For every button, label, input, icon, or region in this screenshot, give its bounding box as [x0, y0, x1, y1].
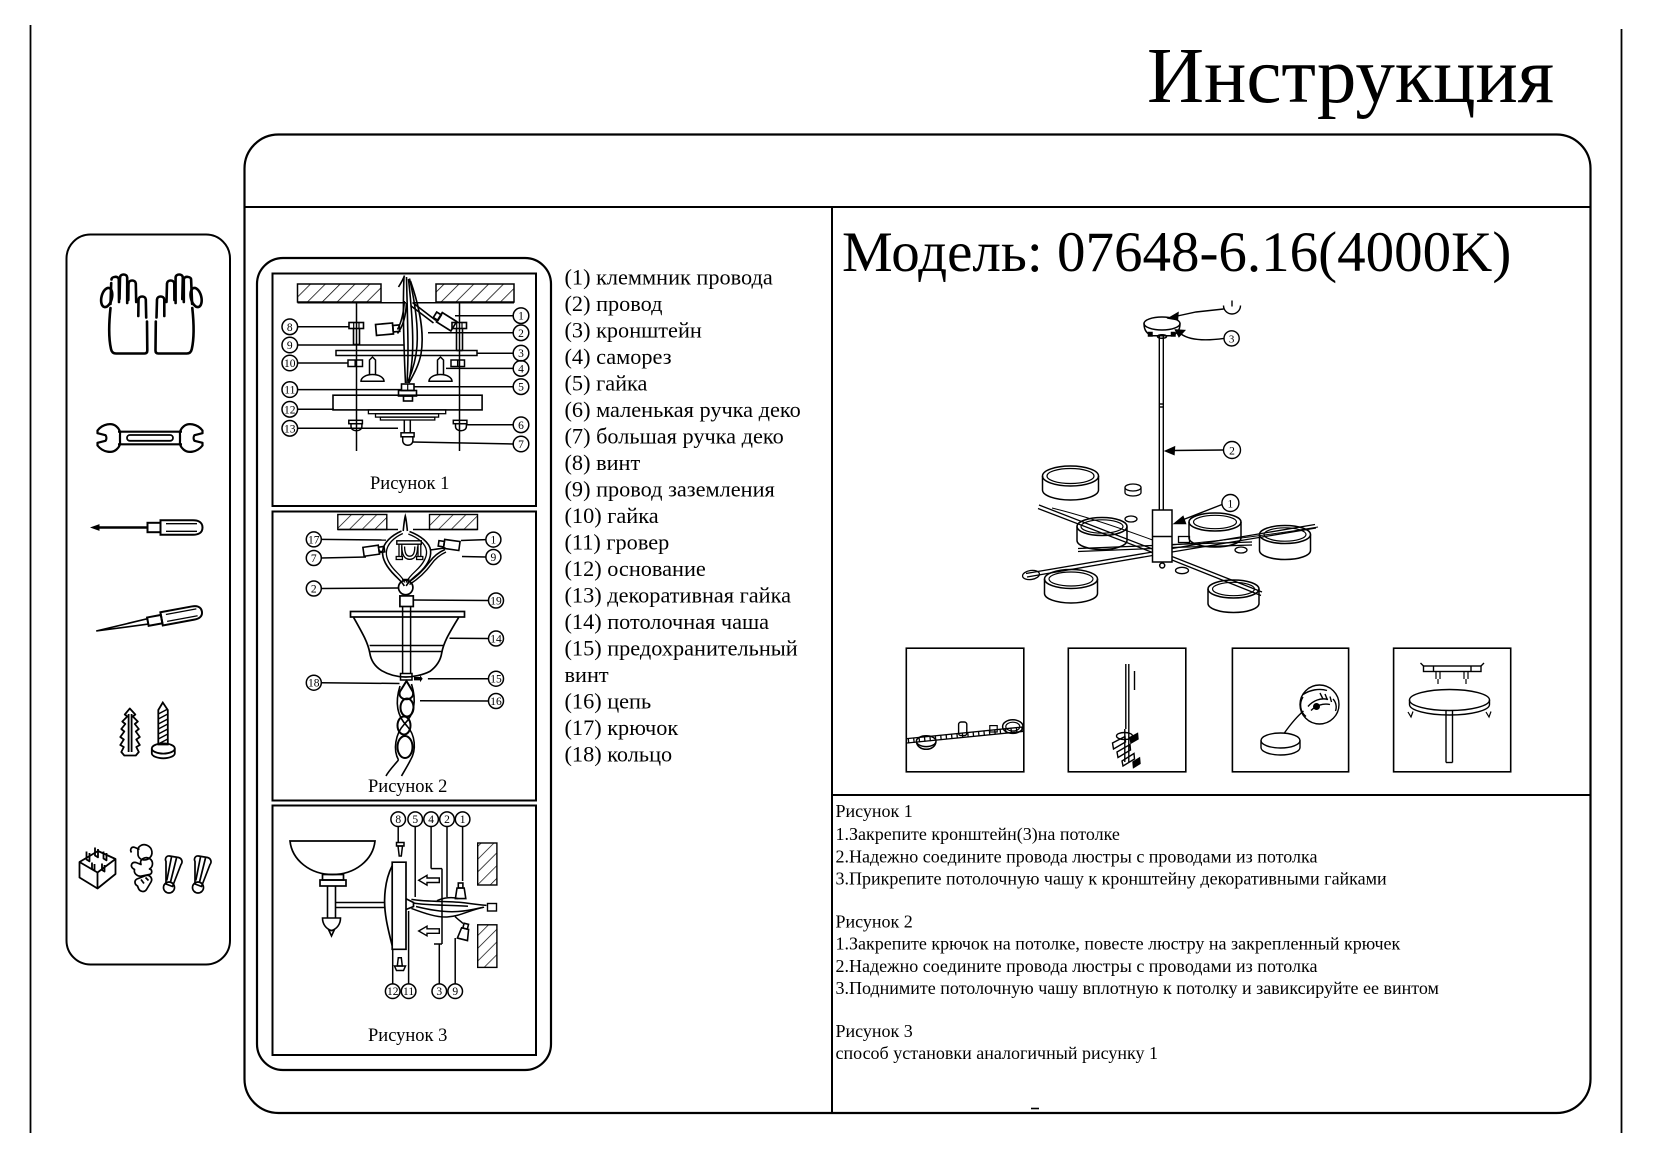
svg-text:15: 15	[490, 674, 502, 686]
svg-text:12: 12	[387, 986, 399, 998]
svg-text:Рисунок 2: Рисунок 2	[836, 912, 913, 932]
svg-text:(3) кронштейн: (3) кронштейн	[565, 318, 702, 343]
svg-text:(2) провод: (2) провод	[565, 291, 663, 316]
svg-text:2.Надежно соедините провода лю: 2.Надежно соедините провода люстры с про…	[836, 847, 1318, 867]
svg-text:9: 9	[452, 986, 458, 998]
svg-text:3: 3	[436, 986, 442, 998]
svg-text:(17) крючок: (17) крючок	[565, 715, 679, 740]
svg-text:(14) потолочная чаша: (14) потолочная чаша	[565, 609, 770, 634]
svg-text:(6) маленькая ручка деко: (6) маленькая ручка деко	[565, 397, 801, 422]
svg-text:1: 1	[1228, 498, 1234, 510]
svg-text:1: 1	[518, 311, 524, 323]
svg-text:12: 12	[284, 404, 296, 416]
svg-text:Модель: 07648-6.16(4000K): Модель: 07648-6.16(4000K)	[842, 221, 1511, 284]
svg-text:Рисунок 2: Рисунок 2	[368, 777, 447, 797]
svg-text:1.Закрепите кронштейн(3)на пот: 1.Закрепите кронштейн(3)на потолке	[836, 824, 1120, 845]
svg-text:7: 7	[311, 553, 317, 565]
svg-text:2: 2	[311, 584, 317, 596]
svg-text:(7) большая ручка деко: (7) большая ручка деко	[565, 424, 784, 449]
svg-text:6: 6	[518, 420, 524, 432]
svg-text:16: 16	[490, 696, 502, 708]
svg-text:(13) декоративная гайка: (13) декоративная гайка	[565, 583, 792, 608]
svg-text:(18) кольцо: (18) кольцо	[565, 742, 673, 767]
svg-text:(1) клеммник провода: (1) клеммник провода	[565, 265, 773, 290]
svg-text:Инструкция: Инструкция	[1147, 33, 1554, 120]
svg-text:Рисунок 3: Рисунок 3	[368, 1026, 447, 1046]
svg-text:3.Прикрепите потолочную чашу к: 3.Прикрепите потолочную чашу к кронштейн…	[836, 869, 1388, 889]
svg-text:9: 9	[491, 552, 497, 564]
svg-text:19: 19	[490, 596, 502, 608]
svg-text:13: 13	[284, 423, 296, 435]
svg-text:3: 3	[1229, 333, 1235, 345]
svg-text:11: 11	[403, 986, 414, 998]
svg-text:7: 7	[518, 439, 524, 451]
svg-text:3.Поднимите потолочную чашу вп: 3.Поднимите потолочную чашу вплотную к п…	[836, 978, 1439, 998]
svg-text:Рисунок 1: Рисунок 1	[836, 801, 913, 821]
svg-text:10: 10	[284, 358, 296, 370]
svg-text:8: 8	[287, 322, 293, 334]
svg-text:(10) гайка: (10) гайка	[565, 503, 659, 528]
svg-text:18: 18	[308, 678, 320, 690]
svg-text:3: 3	[518, 348, 524, 360]
svg-text:2: 2	[444, 814, 450, 826]
svg-text:17: 17	[308, 534, 320, 546]
svg-text:1.Закрепите крючок на потолке,: 1.Закрепите крючок на потолке, повесте л…	[836, 934, 1401, 954]
svg-text:5: 5	[412, 814, 418, 826]
svg-text:8: 8	[395, 814, 401, 826]
svg-text:2: 2	[1229, 445, 1235, 457]
svg-text:4: 4	[518, 363, 524, 375]
svg-text:Рисунок 3: Рисунок 3	[836, 1021, 913, 1041]
svg-text:Рисунок 1: Рисунок 1	[370, 474, 449, 494]
svg-text:1: 1	[460, 814, 466, 826]
svg-text:2: 2	[518, 328, 524, 340]
svg-text:(9) провод заземления: (9) провод заземления	[565, 477, 775, 502]
svg-text:4: 4	[428, 814, 434, 826]
svg-text:(4) саморез: (4) саморез	[565, 344, 672, 369]
svg-text:9: 9	[287, 340, 293, 352]
svg-text:винт: винт	[565, 662, 609, 687]
svg-text:(16) цепь: (16) цепь	[565, 689, 652, 714]
svg-text:11: 11	[284, 385, 295, 397]
svg-text:14: 14	[490, 634, 502, 646]
svg-text:(12) основание: (12) основание	[565, 556, 706, 581]
svg-text:способ установки аналогичный р: способ установки аналогичный рисунку 1	[836, 1043, 1158, 1063]
svg-text:(15) предохранительный: (15) предохранительный	[565, 636, 798, 661]
svg-text:(5) гайка: (5) гайка	[565, 371, 648, 396]
svg-text:1: 1	[491, 535, 497, 547]
svg-text:(11) гровер: (11) гровер	[565, 530, 670, 555]
svg-text:(8) винт: (8) винт	[565, 450, 641, 475]
svg-text:5: 5	[518, 382, 524, 394]
svg-text:2.Надежно соедините провода лю: 2.Надежно соедините провода люстры с про…	[836, 956, 1318, 976]
